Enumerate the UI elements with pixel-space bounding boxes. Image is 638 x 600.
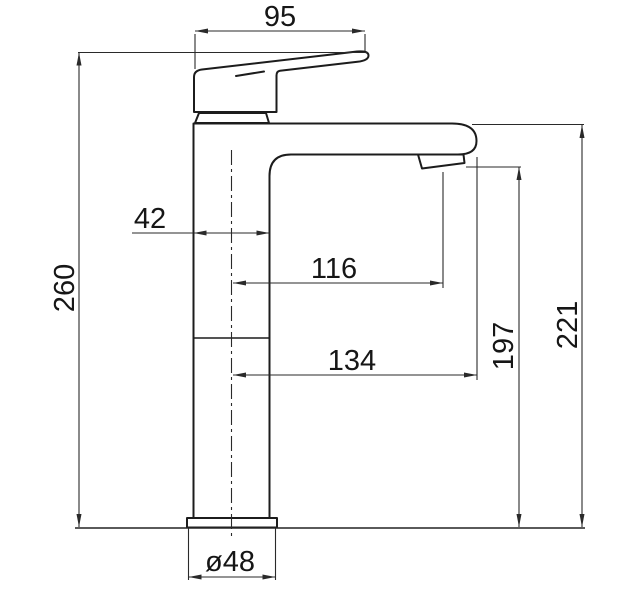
lever-handle xyxy=(194,51,369,112)
technical-drawing-canvas: 95 260 42 116 134 19 xyxy=(0,0,638,600)
dimension-base-diameter: ø48 xyxy=(189,529,276,581)
spout-aerator xyxy=(418,155,465,169)
faucet-outline xyxy=(187,51,477,527)
faucet-body-and-spout xyxy=(194,124,477,519)
handle-escutcheon xyxy=(195,113,269,123)
handle-length-label: 95 xyxy=(264,1,296,33)
base-diameter-label: ø48 xyxy=(205,546,255,578)
outlet-height-label: 197 xyxy=(488,322,520,370)
spout-top-height-label: 221 xyxy=(552,301,584,349)
overall-height-label: 260 xyxy=(49,264,81,312)
faucet-technical-drawing: 95 260 42 116 134 19 xyxy=(0,0,638,600)
overall-reach-label: 134 xyxy=(328,345,376,377)
spout-reach-label: 116 xyxy=(311,253,357,285)
dimension-outlet-height: 197 xyxy=(466,167,521,527)
body-width-label: 42 xyxy=(134,203,166,235)
